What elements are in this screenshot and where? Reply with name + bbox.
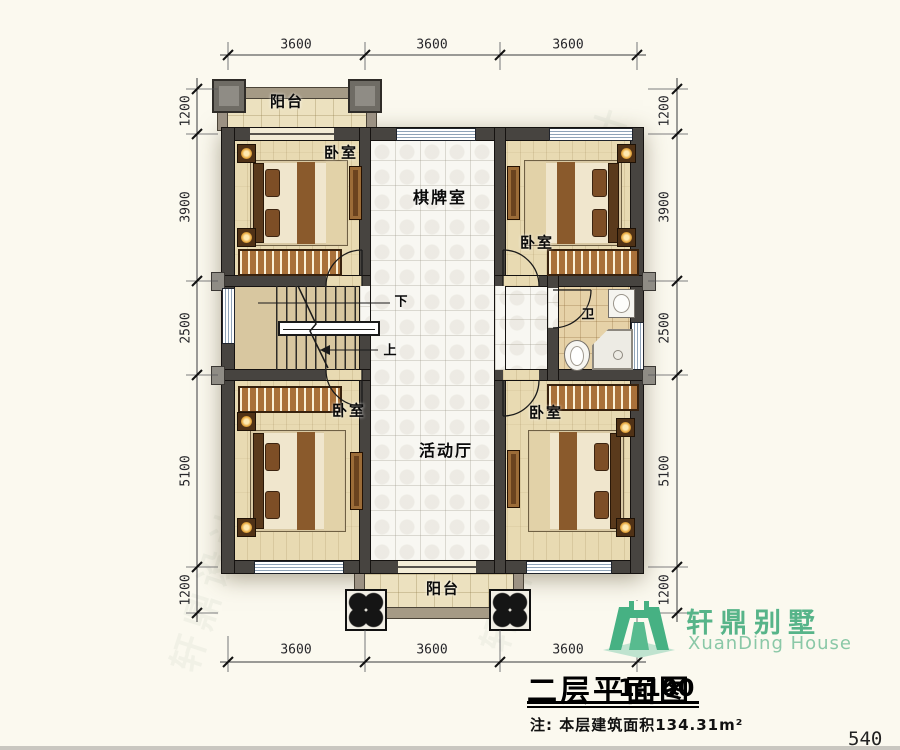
wall-pilaster <box>642 272 656 291</box>
pillow <box>265 443 280 471</box>
window-stairs-left <box>222 288 235 344</box>
nightstand-lamp <box>237 144 256 163</box>
dim-right-3: 2500 <box>658 312 673 343</box>
area-note: 注: 本层建筑面积134.31m² <box>530 714 743 735</box>
room-label-activity-hall: 活动厅 <box>419 437 473 461</box>
door-opening-bedroom-bl <box>326 370 362 380</box>
nightstand-lamp <box>237 228 256 247</box>
room-label-bedroom-bl: 卧室 <box>332 400 366 421</box>
stair-label-up: 上 <box>383 340 396 359</box>
balcony-column <box>348 79 382 113</box>
dim-left-5: 1200 <box>179 574 194 605</box>
dim-bottom-1: 3600 <box>280 643 311 658</box>
bed-quilt <box>559 432 577 530</box>
balcony-door-top <box>250 128 334 140</box>
drawing-scale: 1:100 <box>618 674 694 702</box>
room-label-bedroom-br: 卧室 <box>529 402 563 423</box>
pillow <box>265 491 280 519</box>
balcony-column <box>212 79 246 113</box>
bed <box>250 160 348 246</box>
window-bedroom-br-bottom <box>526 561 612 574</box>
dim-right-5: 1200 <box>658 574 673 605</box>
dim-right-2: 3900 <box>658 191 673 222</box>
room-label-bedroom-tl: 卧室 <box>324 142 358 163</box>
wardrobe <box>238 386 342 413</box>
window-bedroom-tr-top <box>549 128 633 141</box>
bed-quilt <box>297 432 315 530</box>
floorplan-page: { "page": { "number": "540" }, "title_bl… <box>0 0 900 750</box>
pillow <box>592 169 607 197</box>
dresser <box>349 166 362 220</box>
nightstand-lamp <box>617 228 636 247</box>
bed <box>528 430 624 532</box>
stair-handrail <box>278 321 380 336</box>
page-footer-strip <box>0 746 900 750</box>
bed <box>250 430 346 532</box>
stair-label-down: 下 <box>394 291 407 310</box>
balcony-door-bottom <box>398 561 476 573</box>
pillow <box>265 209 280 237</box>
dim-left-3: 2500 <box>179 312 194 343</box>
dim-right-1: 1200 <box>658 95 673 126</box>
title-rule-thin <box>527 706 699 708</box>
bed-foot-throw <box>530 432 550 530</box>
bed-foot-throw <box>326 162 346 244</box>
balcony-column-capital <box>345 589 387 631</box>
wardrobe <box>547 249 639 276</box>
nightstand-lamp <box>616 418 635 437</box>
dresser <box>507 166 520 220</box>
dim-bottom-3: 3600 <box>552 643 583 658</box>
pillow <box>592 209 607 237</box>
pillow <box>594 443 609 471</box>
dim-left-2: 3900 <box>179 191 194 222</box>
title-rule-thick <box>527 701 699 704</box>
room-label-game-room: 棋牌室 <box>413 184 467 208</box>
door-opening-bedroom-br <box>503 370 539 380</box>
room-label-balcony-top: 阳台 <box>270 91 304 112</box>
bed-quilt <box>557 162 575 244</box>
door-opening-bedroom-tr <box>503 276 539 286</box>
wardrobe <box>238 249 342 276</box>
room-label-balcony-bottom: 阳台 <box>426 578 460 599</box>
dim-left-1: 1200 <box>179 95 194 126</box>
pillow <box>265 169 280 197</box>
room-label-bath: 卫 <box>581 304 594 323</box>
window-gameroom-top <box>396 128 476 141</box>
window-bedroom-bl-bottom <box>254 561 344 574</box>
nightstand-lamp <box>616 518 635 537</box>
bed-quilt <box>297 162 315 244</box>
dresser <box>350 452 363 510</box>
room-label-bedroom-tr: 卧室 <box>520 232 554 253</box>
dresser <box>507 450 520 508</box>
nightstand-lamp <box>617 144 636 163</box>
wall-pilaster <box>211 366 225 385</box>
xuanding-logo-icon <box>598 597 680 663</box>
dim-top-1: 3600 <box>280 38 311 53</box>
bed-headboard <box>610 433 621 529</box>
balcony-column-capital <box>489 589 531 631</box>
dim-top-3: 3600 <box>552 38 583 53</box>
dim-right-4: 5100 <box>658 455 673 486</box>
nightstand-lamp <box>237 518 256 537</box>
bed-foot-throw <box>324 432 344 530</box>
nightstand-lamp <box>237 412 256 431</box>
pillow <box>594 491 609 519</box>
dim-bottom-2: 3600 <box>416 643 447 658</box>
wall-exterior-left <box>222 128 234 573</box>
wall-pilaster <box>642 366 656 385</box>
opening-hall-to-corridor <box>495 286 505 370</box>
dim-left-4: 5100 <box>179 455 194 486</box>
door-opening-bedroom-tl <box>326 276 362 286</box>
logo-name-en: XuanDing House <box>688 633 852 654</box>
dim-top-2: 3600 <box>416 38 447 53</box>
bed-headboard <box>253 433 264 529</box>
door-opening-bathroom <box>548 288 558 328</box>
sink <box>608 289 635 318</box>
